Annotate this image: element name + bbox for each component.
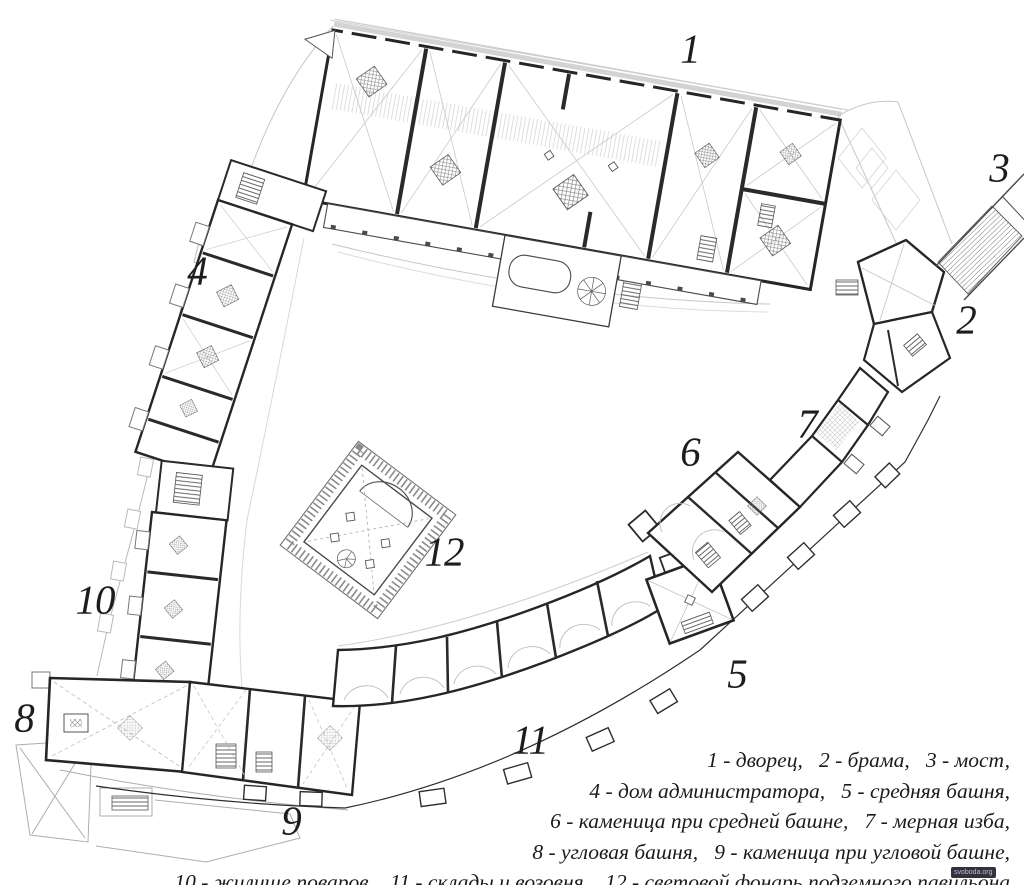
- legend-line-3: 6 - каменица при средней башне, 7 - мерн…: [6, 806, 1010, 837]
- administrator-house-wing: [122, 156, 326, 483]
- legend-line-2: 4 - дом администратора, 5 - средняя башн…: [6, 776, 1010, 807]
- plan-label-1: 1: [680, 29, 700, 70]
- plan-label-4: 4: [187, 251, 207, 292]
- plan-legend: 1 - дворец, 2 - брама, 3 - мост, 4 - дом…: [6, 745, 1010, 885]
- watermark: svoboda.org: [951, 867, 996, 878]
- plan-label-10: 10: [76, 580, 115, 621]
- gate-building: [836, 240, 950, 392]
- plan-label-5: 5: [727, 654, 747, 695]
- palace-block: [265, 15, 842, 361]
- plan-label-7: 7: [797, 404, 817, 445]
- cooks-quarters-range: [119, 459, 234, 704]
- legend-line-1: 1 - дворец, 2 - брама, 3 - мост,: [6, 745, 1010, 776]
- plan-label-6: 6: [680, 432, 700, 473]
- legend-line-5: 10 - жилище поваров, 11 - склады и возов…: [6, 867, 1010, 885]
- plan-label-2: 2: [956, 300, 976, 341]
- measuring-house: [770, 368, 890, 507]
- plan-label-8: 8: [14, 698, 34, 739]
- legend-line-4: 8 - угловая башня, 9 - каменица при угло…: [6, 837, 1010, 868]
- scanned-floor-plan-page: 1 2 3 4 5 6 7 8 9 10 11 12 1 - дворец, 2…: [0, 0, 1024, 885]
- plan-label-3: 3: [989, 148, 1009, 189]
- plan-label-12: 12: [425, 532, 464, 573]
